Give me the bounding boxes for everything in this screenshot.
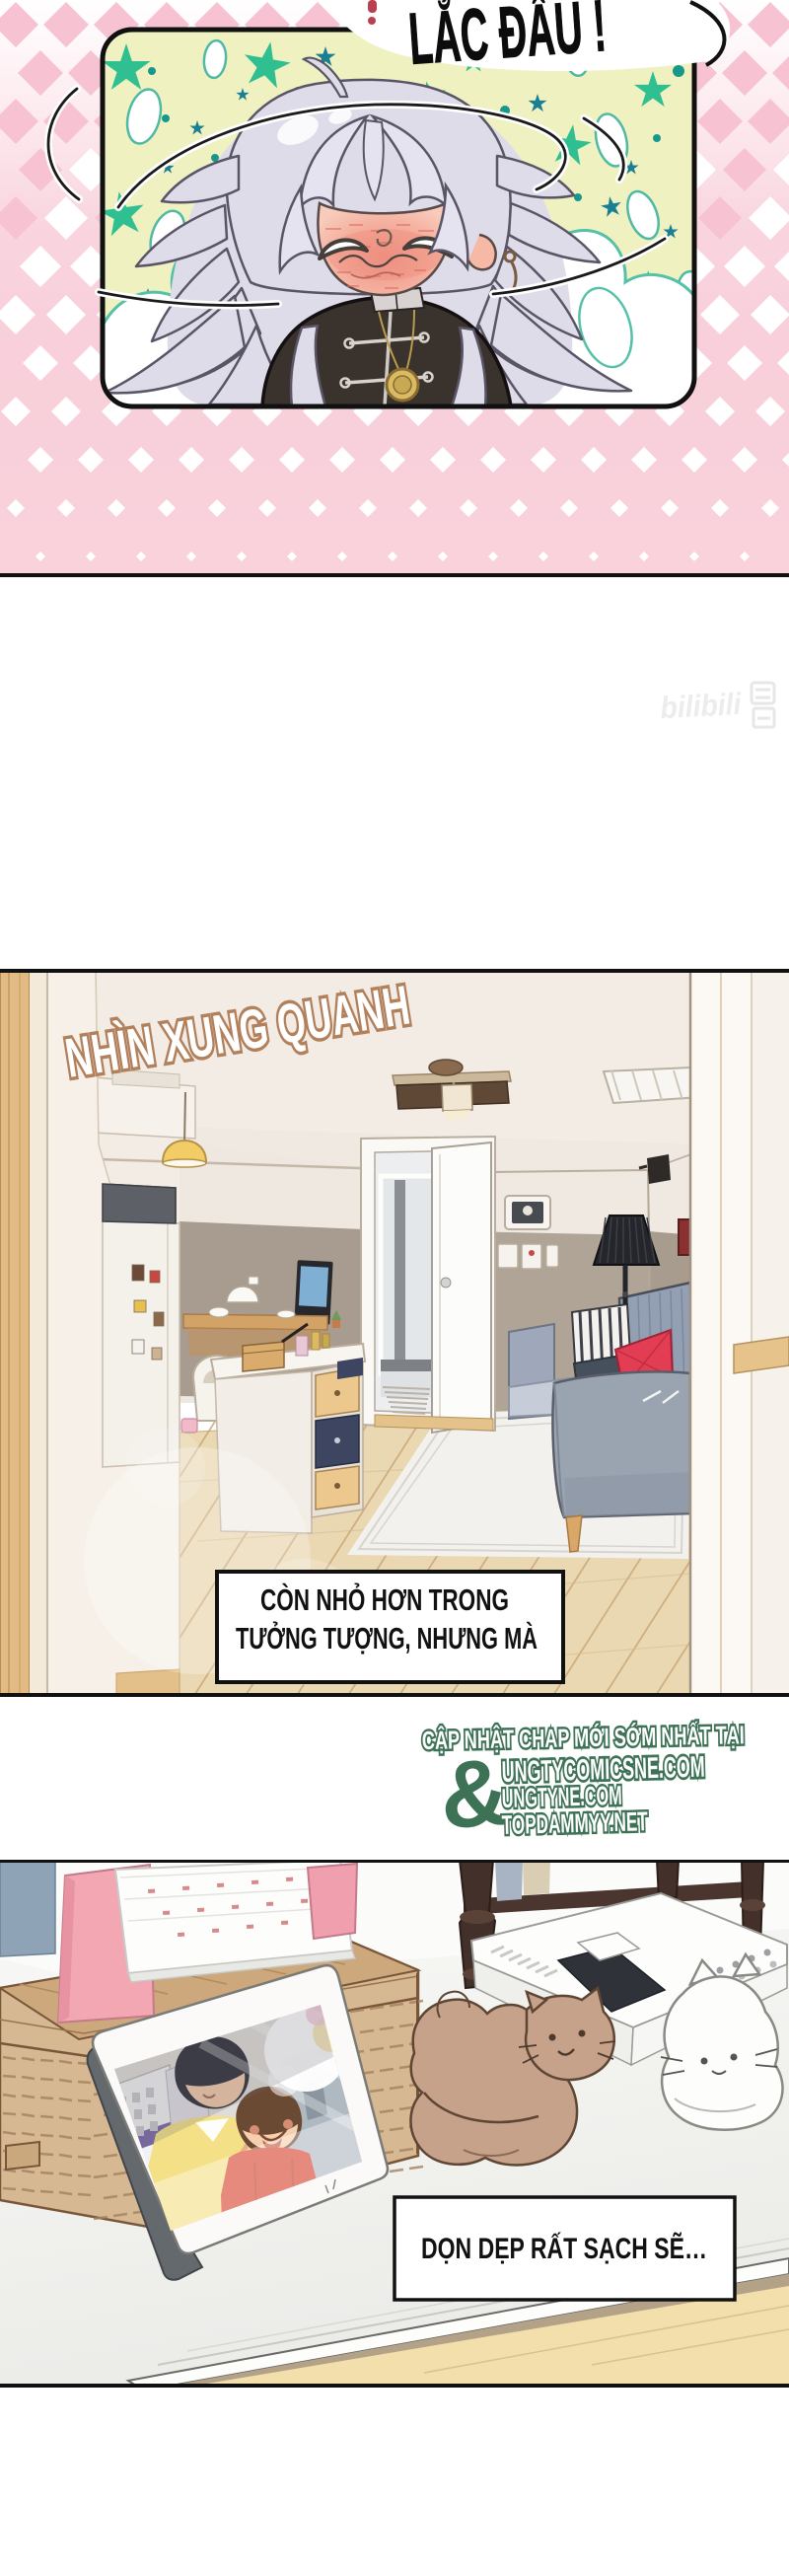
svg-text:bilibili: bilibili bbox=[660, 687, 744, 725]
svg-text:DỌN DẸP RẤT SẠCH SẼ…: DỌN DẸP RẤT SẠCH SẼ… bbox=[421, 2232, 707, 2265]
svg-text:LẮC ĐẦU !: LẮC ĐẦU ! bbox=[406, 0, 609, 80]
svg-text:TOPDAMMYY.NET: TOPDAMMYY.NET bbox=[501, 1806, 648, 1840]
svg-text:TƯỞNG TƯỢNG, NHƯNG MÀ: TƯỞNG TƯỢNG, NHƯNG MÀ bbox=[236, 1620, 538, 1656]
svg-text:CÒN NHỎ HƠN TRONG: CÒN NHỎ HƠN TRONG bbox=[260, 1582, 509, 1617]
